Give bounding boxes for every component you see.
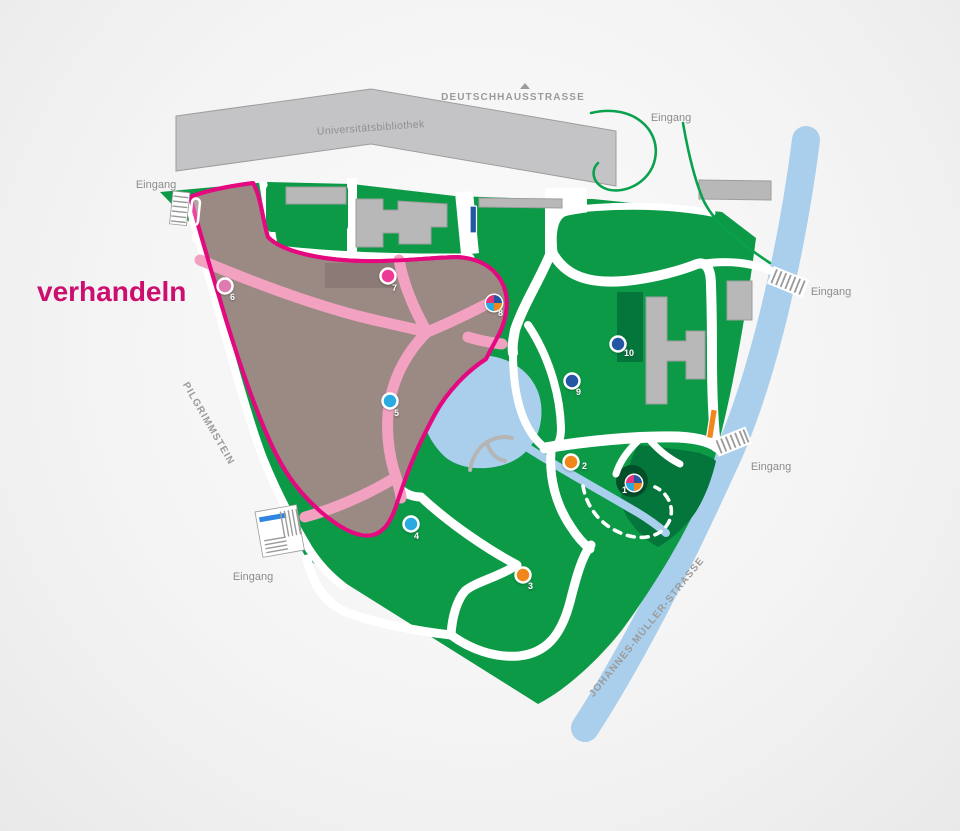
entrance-label-top-right: Eingang <box>651 112 691 124</box>
svg-text:4: 4 <box>414 531 419 541</box>
park-map-page: 1 2 3 4 5 6 7 <box>0 0 960 831</box>
svg-text:10: 10 <box>624 348 634 358</box>
street-label-deutschhausstrasse: DEUTSCHHAUSSTRASSE <box>441 92 585 103</box>
svg-text:5: 5 <box>394 408 399 418</box>
entrance-label-right-upper: Eingang <box>811 286 851 298</box>
ramp-icon <box>190 198 201 226</box>
svg-text:7: 7 <box>392 283 397 293</box>
svg-text:9: 9 <box>576 387 581 397</box>
entrance-label-right-lower: Eingang <box>751 461 791 473</box>
entrance-label-bottom-left: Eingang <box>233 571 273 583</box>
street-label-pilgrimmstein: PILGRIMMSTEIN <box>180 380 236 467</box>
street-arrow-icon <box>520 83 530 89</box>
page-title: verhandeln <box>37 276 186 307</box>
svg-text:1: 1 <box>622 485 627 495</box>
stairs-bottom-left <box>255 505 304 558</box>
svg-text:6: 6 <box>230 292 235 302</box>
svg-text:3: 3 <box>528 581 533 591</box>
park-map: 1 2 3 4 5 6 7 <box>0 0 960 831</box>
library-building <box>176 89 616 186</box>
entrance-label-top-left: Eingang <box>136 179 176 191</box>
blue-gate-bar <box>470 206 477 233</box>
svg-text:2: 2 <box>582 461 587 471</box>
svg-text:8: 8 <box>498 308 503 318</box>
